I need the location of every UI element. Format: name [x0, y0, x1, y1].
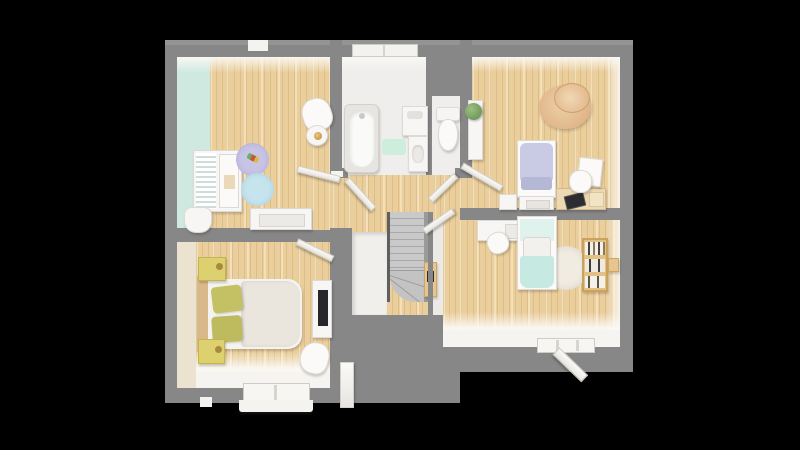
table-lamp: [314, 132, 322, 140]
laptop: [564, 192, 587, 210]
desk-chair-tr: [569, 170, 592, 193]
blue-round-rug: [241, 173, 274, 206]
bath-mat: [382, 139, 406, 155]
yellow-nightstand-top: [198, 257, 226, 281]
staircase: [390, 212, 424, 302]
bed-mint: [517, 216, 557, 290]
mint-duvet: [520, 256, 554, 288]
wall-hook: [608, 258, 619, 272]
bookshelf: [582, 238, 608, 292]
bedroom-bl-accent-wall: [177, 242, 196, 388]
duvet: [241, 281, 300, 347]
olive-pillow-1: [211, 284, 244, 313]
divider-left-rooms: [165, 228, 297, 242]
wall-wc-top: [426, 57, 462, 96]
toilet-bowl: [438, 119, 458, 151]
stair-closet: [352, 232, 387, 315]
kids-room-ceiling-trim: [177, 57, 332, 73]
vanity-sink: [408, 136, 428, 172]
bed-storage-bench: [519, 196, 554, 210]
tv: [318, 290, 328, 326]
white-door-panel-bl: [340, 362, 354, 408]
tub-faucet: [359, 113, 365, 119]
floor-plan-render: [0, 0, 800, 450]
wall-kids-bathroom: [330, 40, 342, 175]
under-stairs-wall: [352, 315, 443, 403]
bathtub: [344, 104, 379, 173]
bathroom-window: [352, 44, 418, 57]
top-wall-window-notch: [248, 40, 268, 51]
tv-stand: [312, 280, 332, 338]
bathroom-ceiling-trim: [342, 57, 428, 71]
bedroom-tr-right-trim: [606, 57, 620, 210]
wall-tab-left: [200, 397, 212, 407]
kids-side-table: [306, 125, 328, 146]
bed-lavender: [517, 140, 556, 198]
kids-dresser: [250, 208, 312, 230]
bedroom-br-right-trim: [606, 220, 620, 330]
window-br: [537, 338, 595, 353]
washing-machine: [402, 106, 428, 136]
laundry-basket: [184, 207, 212, 233]
stair-winder-steps: [390, 270, 424, 302]
lavender-duvet: [520, 143, 553, 181]
bedroom-tr-ceiling-trim: [472, 57, 620, 72]
plant: [465, 103, 482, 120]
nightstand-tr: [499, 194, 517, 210]
yellow-nightstand-bottom: [198, 339, 225, 364]
desk-organizer: [589, 192, 604, 207]
open-wardrobe-shelf: [193, 150, 242, 212]
lavender-pillow: [521, 177, 552, 190]
stair-railing: [387, 212, 390, 302]
window-bl-outer-sill: [239, 400, 313, 412]
sun-hat-pouf-crown: [554, 83, 590, 113]
